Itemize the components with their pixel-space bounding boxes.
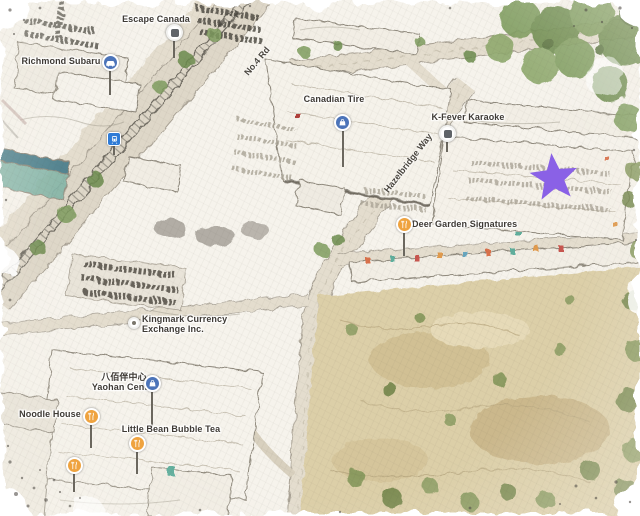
place-marker-deer-garden[interactable] [396,216,413,233]
poi-layer: No.4 Rd Hazelbridge Way Escape Canada Ri… [0,0,640,516]
small-dot-icon [132,321,136,325]
place-marker-yaohan-centre[interactable] [144,375,161,392]
shopping-bag-icon [148,379,157,388]
marker-pole [151,392,153,428]
place-marker-escape-canada[interactable] [166,24,183,41]
fork-knife-icon [70,461,79,470]
marker-pole [173,40,175,58]
poi-label-k-fever-karaoke[interactable]: K-Fever Karaoke [430,112,506,122]
five-point-star-shape [528,151,580,201]
marker-pole [446,141,448,152]
marker-pole [403,233,405,256]
marker-pole [113,146,115,155]
generic-square-icon [171,29,179,37]
poi-label-noodle-house[interactable]: Noodle House [16,409,84,419]
generic-square-icon [444,130,452,138]
poi-label-canadian-tire[interactable]: Canadian Tire [292,94,376,104]
place-marker-kingmark[interactable] [128,317,140,329]
sketch-aerial-map[interactable]: No.4 Rd Hazelbridge Way Escape Canada Ri… [0,0,640,516]
transit-station-icon [110,135,119,144]
car-icon [105,59,116,67]
poi-label-escape-canada[interactable]: Escape Canada [118,14,194,24]
place-marker-canadian-tire[interactable] [334,114,351,131]
poi-label-line1: Kingmark Currency [142,314,227,324]
place-marker-restaurant-unlabeled[interactable] [66,457,83,474]
poi-label-richmond-subaru[interactable]: Richmond Subaru [20,56,102,66]
place-marker-little-bean[interactable] [129,435,146,452]
shopping-bag-icon [338,118,347,127]
transit-station-marker[interactable] [107,132,121,146]
fork-knife-icon [87,412,96,421]
poi-label-kingmark-currency-exchange[interactable]: Kingmark Currency Exchange Inc. [142,314,227,334]
poi-label-little-bean-bubble-tea[interactable]: Little Bean Bubble Tea [118,424,224,434]
star-marker[interactable] [524,148,583,207]
poi-label-line2: Exchange Inc. [142,324,227,334]
fork-knife-icon [133,439,142,448]
marker-pole [90,425,92,448]
marker-pole [109,70,111,95]
road-label-no4-rd: No.4 Rd [233,34,281,88]
fork-knife-icon [400,220,409,229]
place-marker-noodle-house[interactable] [83,408,100,425]
road-label-hazelbridge-way: Hazelbridge Way [370,116,447,210]
place-marker-richmond-subaru[interactable] [102,54,119,71]
marker-pole [73,474,75,492]
poi-label-deer-garden-signatures[interactable]: Deer Garden Signatures [412,219,522,229]
marker-pole [136,452,138,474]
marker-pole [342,131,344,167]
place-marker-k-fever-karaoke[interactable] [439,125,456,142]
